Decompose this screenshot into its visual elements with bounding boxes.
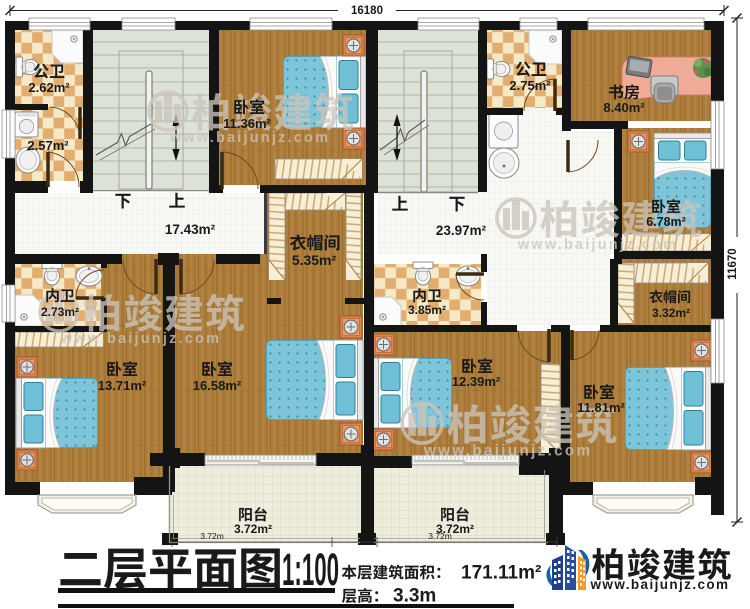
svg-text:11.36m²: 11.36m² <box>223 116 271 131</box>
svg-text:16180: 16180 <box>351 5 383 17</box>
svg-text:www.baijunjz.com: www.baijunjz.com <box>60 331 221 347</box>
svg-text:www.baijunjz.com: www.baijunjz.com <box>423 443 592 460</box>
svg-text:23.97m²: 23.97m² <box>436 223 487 238</box>
svg-text:3.3m: 3.3m <box>393 586 436 607</box>
svg-text:2.57m²: 2.57m² <box>27 138 69 153</box>
svg-text:2.62m²: 2.62m² <box>28 80 70 95</box>
svg-text:6.78m²: 6.78m² <box>646 215 686 229</box>
svg-text:13.71m²: 13.71m² <box>98 378 147 393</box>
svg-text:3.72m: 3.72m <box>428 531 452 541</box>
svg-text:3.32m²: 3.32m² <box>652 306 690 320</box>
svg-text:3.85m²: 3.85m² <box>408 303 446 317</box>
svg-text:3.72m²: 3.72m² <box>234 522 272 536</box>
svg-text:8.40m²: 8.40m² <box>603 100 645 115</box>
svg-text:17.43m²: 17.43m² <box>165 222 216 237</box>
svg-text:2.75m²: 2.75m² <box>509 78 551 93</box>
svg-text:16.58m²: 16.58m² <box>193 378 242 393</box>
svg-text:3.72m: 3.72m <box>200 531 224 541</box>
svg-text:12.39m²: 12.39m² <box>452 374 501 389</box>
svg-text:5.35m²: 5.35m² <box>292 252 337 268</box>
svg-text:www.baijunjz.com: www.baijunjz.com <box>590 577 730 592</box>
svg-text:2.73m²: 2.73m² <box>41 305 79 319</box>
svg-text:11.81m²: 11.81m² <box>577 400 625 415</box>
svg-text:11670: 11670 <box>727 248 739 279</box>
svg-text:www.baijunjz.com: www.baijunjz.com <box>169 130 330 146</box>
svg-text:www.baijunjz.com: www.baijunjz.com <box>517 237 678 253</box>
svg-text:171.11m²: 171.11m² <box>461 563 541 584</box>
svg-text:1:100: 1:100 <box>282 544 339 595</box>
